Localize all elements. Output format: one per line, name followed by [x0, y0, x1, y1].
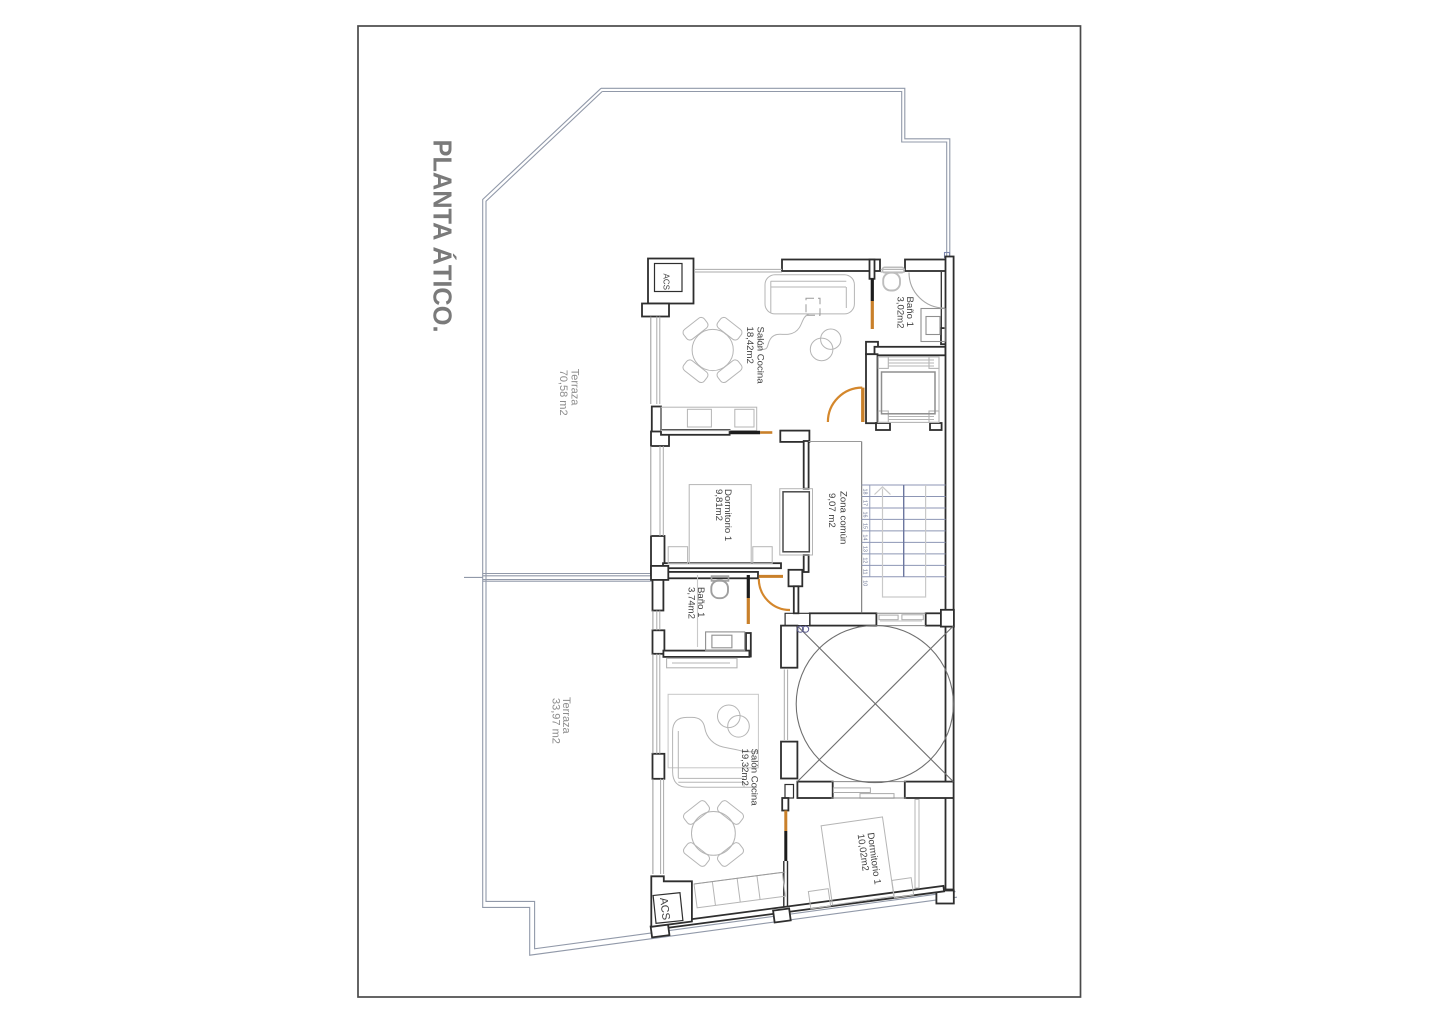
svg-text:16: 16: [862, 512, 868, 518]
svg-text:ACS: ACS: [662, 274, 671, 290]
svg-text:Baño 13,02m2: Baño 13,02m2: [895, 297, 916, 329]
svg-text:13: 13: [862, 546, 868, 552]
svg-text:17: 17: [862, 500, 868, 506]
svg-text:15: 15: [862, 523, 868, 529]
svg-text:11: 11: [862, 569, 868, 575]
svg-text:18: 18: [862, 489, 868, 495]
svg-text:Baño 13,74m2: Baño 13,74m2: [686, 587, 707, 619]
svg-text:PLANTA ÁTICO.: PLANTA ÁTICO.: [428, 140, 458, 333]
svg-text:10: 10: [862, 580, 868, 586]
svg-text:12: 12: [862, 557, 868, 563]
svg-text:14: 14: [862, 534, 868, 540]
